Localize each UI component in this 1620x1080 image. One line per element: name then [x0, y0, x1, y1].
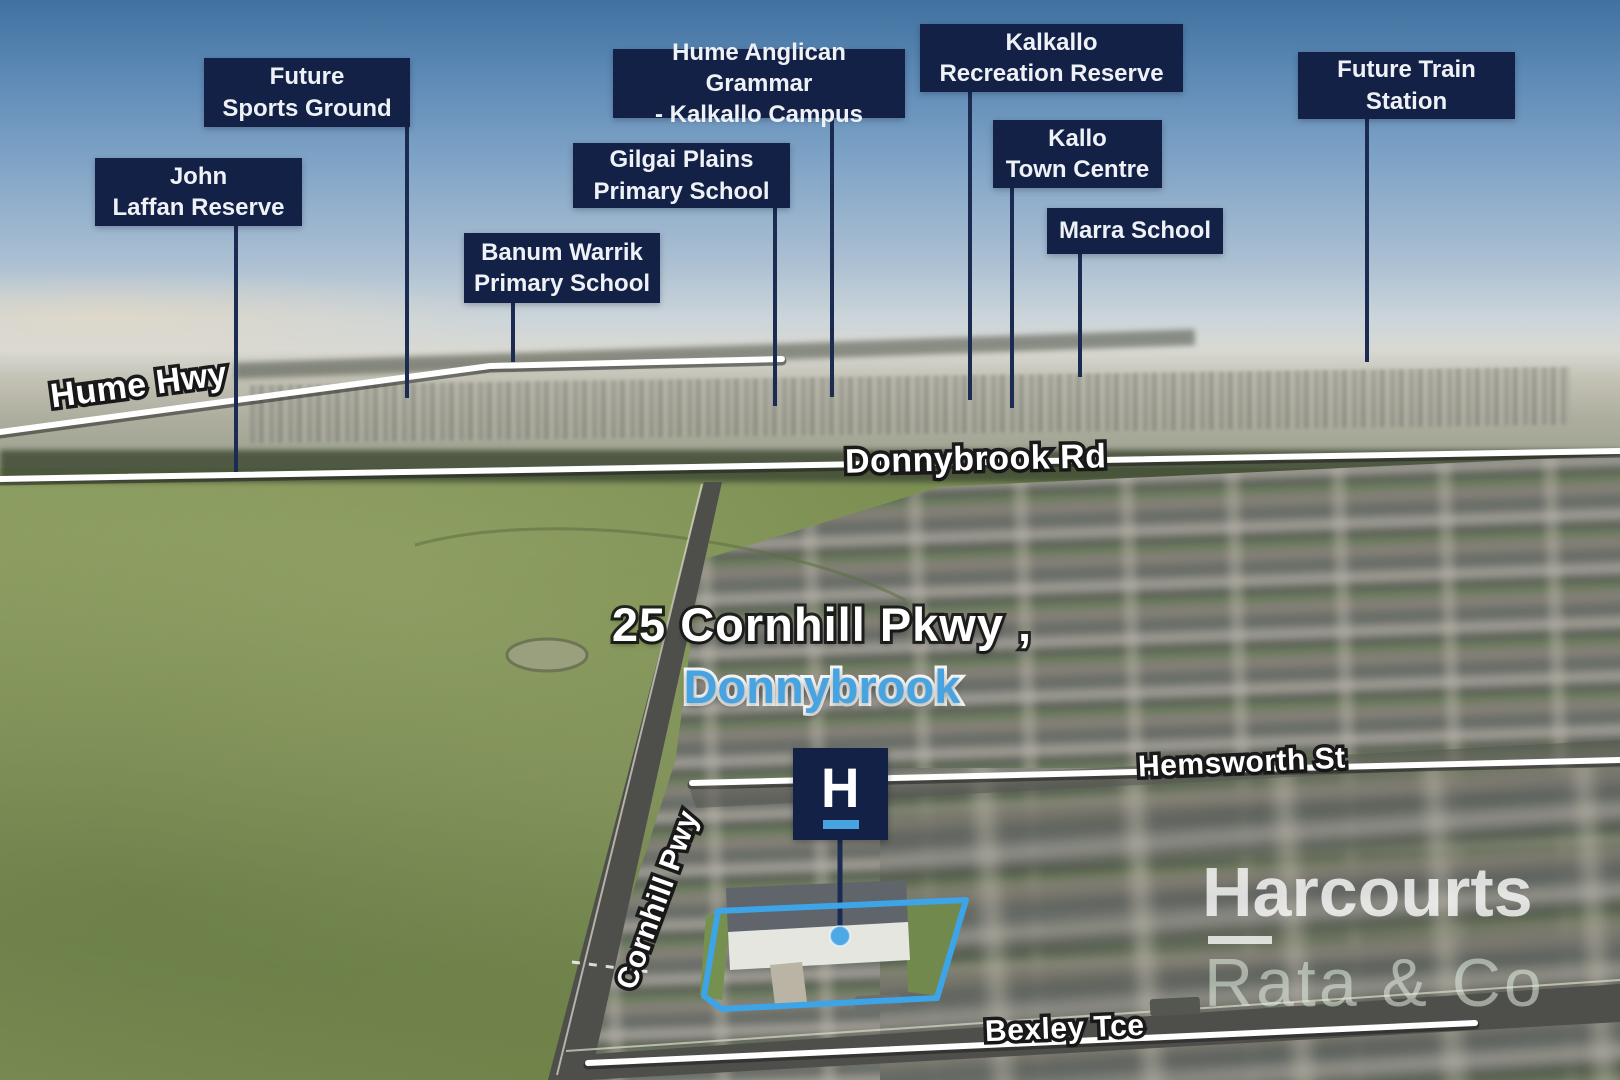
address-line-2: Donnybrook	[612, 659, 1032, 714]
label-kalkallo-recreation-reserve: Kalkallo Recreation Reserve	[920, 24, 1183, 92]
property-title: 25 Cornhill Pkwy , Donnybrook	[612, 597, 1032, 714]
harcourts-h-icon: H	[821, 760, 859, 816]
watermark-office-name: Rata & Co	[1204, 944, 1545, 1022]
harcourts-logo-marker: H	[793, 748, 888, 840]
label-gilgai-plains-primary: Gilgai Plains Primary School	[573, 143, 790, 208]
label-banum-warrik-primary: Banum Warrik Primary School	[464, 233, 660, 303]
label-john-laffan-reserve: John Laffan Reserve	[95, 158, 302, 226]
harcourts-logo-underline	[823, 820, 859, 829]
label-future-train-station: Future Train Station	[1298, 52, 1515, 119]
watermark-underline	[1208, 936, 1272, 944]
address-line-1: 25 Cornhill Pkwy ,	[612, 597, 1032, 652]
label-future-sports-ground: Future Sports Ground	[204, 58, 410, 127]
label-marra-school: Marra School	[1047, 208, 1223, 254]
label-kallo-town-centre: Kallo Town Centre	[993, 120, 1162, 188]
label-hume-anglican-grammar: Hume Anglican Grammar - Kalkallo Campus	[613, 49, 905, 118]
roadname-bexley-tce: Bexley Tce	[984, 1009, 1145, 1049]
roadname-donnybrook-rd: Donnybrook Rd	[845, 437, 1107, 481]
aerial-property-map: Future Sports Ground John Laffan Reserve…	[0, 0, 1620, 1080]
watermark-agency-name: Harcourts	[1202, 852, 1533, 932]
